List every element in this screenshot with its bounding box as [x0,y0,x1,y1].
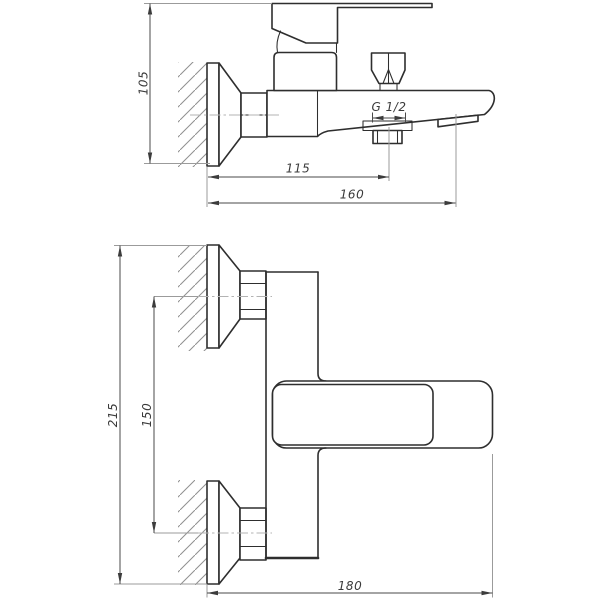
dim-215-label: 215 [106,403,120,427]
lever-handle-side [272,4,432,91]
thread-size-label: G 1/2 [372,100,407,114]
dim-180-label: 180 [338,579,362,593]
lever-handle-front [273,381,493,448]
side-view: 105 115 160 G 1/2 [137,4,495,208]
dimension-105: 105 [137,4,153,164]
dimension-180: 180 [207,579,493,595]
dim-150-label: 150 [140,403,154,427]
dim-115-label: 115 [286,162,310,176]
dimension-150: 150 [140,297,156,534]
technical-drawing-canvas: 105 115 160 G 1/2 [0,0,600,600]
faucet-drawing: 105 115 160 G 1/2 [0,0,600,600]
diverter-knob [372,53,406,91]
wall-hatch-front-top [178,246,207,351]
dimension-215: 215 [106,246,122,585]
dimension-160: 160 [208,188,456,206]
spout-front [266,448,326,558]
dim-105-label: 105 [137,71,151,95]
front-view: 215 150 180 [106,245,493,598]
dimension-115: 115 [208,162,389,180]
dim-160-label: 160 [340,188,364,202]
